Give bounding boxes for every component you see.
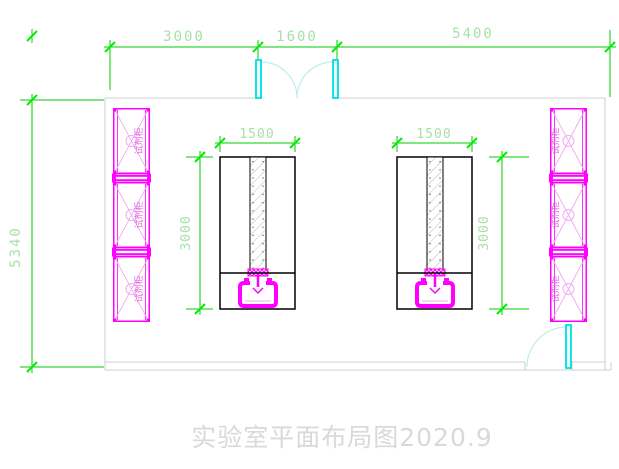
connector-bar — [551, 253, 586, 255]
cabinet-connector — [112, 174, 151, 183]
dim-top-left: 3000 — [163, 29, 205, 45]
connector-bar — [114, 175, 149, 177]
bench-center-strip — [250, 157, 266, 273]
connector-end — [549, 248, 553, 257]
dim-room-height: 5340 — [8, 226, 24, 268]
cabinet-connector — [549, 174, 588, 183]
dim-top-right: 5400 — [452, 26, 494, 42]
bottom-door-jamb-caps — [525, 362, 572, 370]
corner-block — [550, 171, 554, 175]
connector-bar — [551, 175, 586, 177]
reagent-cabinet: 试剂柜 — [113, 256, 150, 322]
connector-end — [584, 248, 588, 257]
door-leaf — [566, 325, 571, 368]
reagent-cabinet: 试剂柜 — [113, 108, 150, 174]
door-swing-arc-left — [261, 62, 297, 98]
corner-block — [147, 245, 151, 249]
dim-bench1-depth: 3000 — [179, 215, 194, 250]
cabinet-connector — [112, 248, 151, 257]
corner-block — [584, 256, 588, 260]
left-cabinet-column: 试剂柜 试剂柜 — [112, 108, 151, 322]
corner-block — [550, 108, 554, 112]
connector-end — [549, 174, 553, 183]
lab-bench-right — [397, 157, 472, 309]
cabinet-label: 试剂柜 — [550, 275, 562, 302]
dim-bench1-width: 1500 — [239, 127, 274, 142]
door-leaf-right — [333, 60, 338, 98]
connector-bar — [551, 179, 586, 181]
connector-end — [584, 174, 588, 183]
corner-block — [550, 256, 554, 260]
corner-block — [147, 171, 151, 175]
corner-block — [113, 319, 117, 323]
corner-block — [113, 182, 117, 186]
corner-block — [113, 108, 117, 112]
door-swing-arc-right — [297, 62, 333, 98]
reagent-cabinet: 试剂柜 — [113, 182, 150, 248]
corner-block — [584, 108, 588, 112]
corner-block — [147, 182, 151, 186]
connector-bar — [114, 249, 149, 251]
corner-block — [550, 182, 554, 186]
connector-bar — [114, 179, 149, 181]
corner-block — [550, 319, 554, 323]
bench-center-strip — [427, 157, 443, 273]
bottom-right-door — [527, 325, 571, 368]
depth-dim-crossbars — [489, 157, 529, 309]
lab-bench-left — [220, 157, 295, 309]
cabinet-connector — [549, 248, 588, 257]
connector-bar — [551, 249, 586, 251]
corner-block — [113, 171, 117, 175]
dim-top-mid: 1600 — [276, 29, 318, 45]
connector-end — [147, 248, 151, 257]
reagent-cabinet: 试剂柜 — [550, 256, 588, 322]
door-swing-arc — [527, 327, 566, 367]
corner-block — [584, 319, 588, 323]
left-extension-lines — [20, 100, 104, 367]
right-cabinet-column: 试剂柜 试剂柜 — [549, 108, 588, 322]
reagent-cabinet: 试剂柜 — [550, 108, 588, 174]
cabinet-label: 试剂柜 — [133, 127, 145, 154]
corner-block — [584, 171, 588, 175]
top-double-door — [256, 60, 338, 98]
cabinet-label: 试剂柜 — [133, 201, 145, 228]
connector-end — [147, 174, 151, 183]
connector-bar — [114, 253, 149, 255]
corner-block — [147, 319, 151, 323]
cabinet-label: 试剂柜 — [133, 275, 145, 302]
drawing-title: 实验室平面布局图2020.9 — [191, 423, 492, 452]
floor-plan-canvas: 3000 1600 5400 5340 1500 3000 — [0, 0, 619, 469]
connector-end — [112, 174, 116, 183]
floor-plan-page: 3000 1600 5400 5340 1500 3000 — [0, 0, 619, 469]
corner-block — [147, 256, 151, 260]
corner-block — [584, 245, 588, 249]
corner-block — [147, 108, 151, 112]
reagent-cabinet: 试剂柜 — [550, 182, 588, 248]
corner-block — [113, 245, 117, 249]
cabinet-label: 试剂柜 — [550, 127, 562, 154]
door-leaf-left — [256, 60, 261, 98]
overall-dimensions: 3000 1600 5400 5340 — [8, 26, 616, 373]
corner-block — [584, 182, 588, 186]
corner-block — [550, 245, 554, 249]
dim-bench2-width: 1500 — [416, 127, 451, 142]
connector-end — [112, 248, 116, 257]
dim-bench2-depth: 3000 — [477, 215, 492, 250]
corner-block — [113, 256, 117, 260]
cabinet-label: 试剂柜 — [550, 201, 562, 228]
